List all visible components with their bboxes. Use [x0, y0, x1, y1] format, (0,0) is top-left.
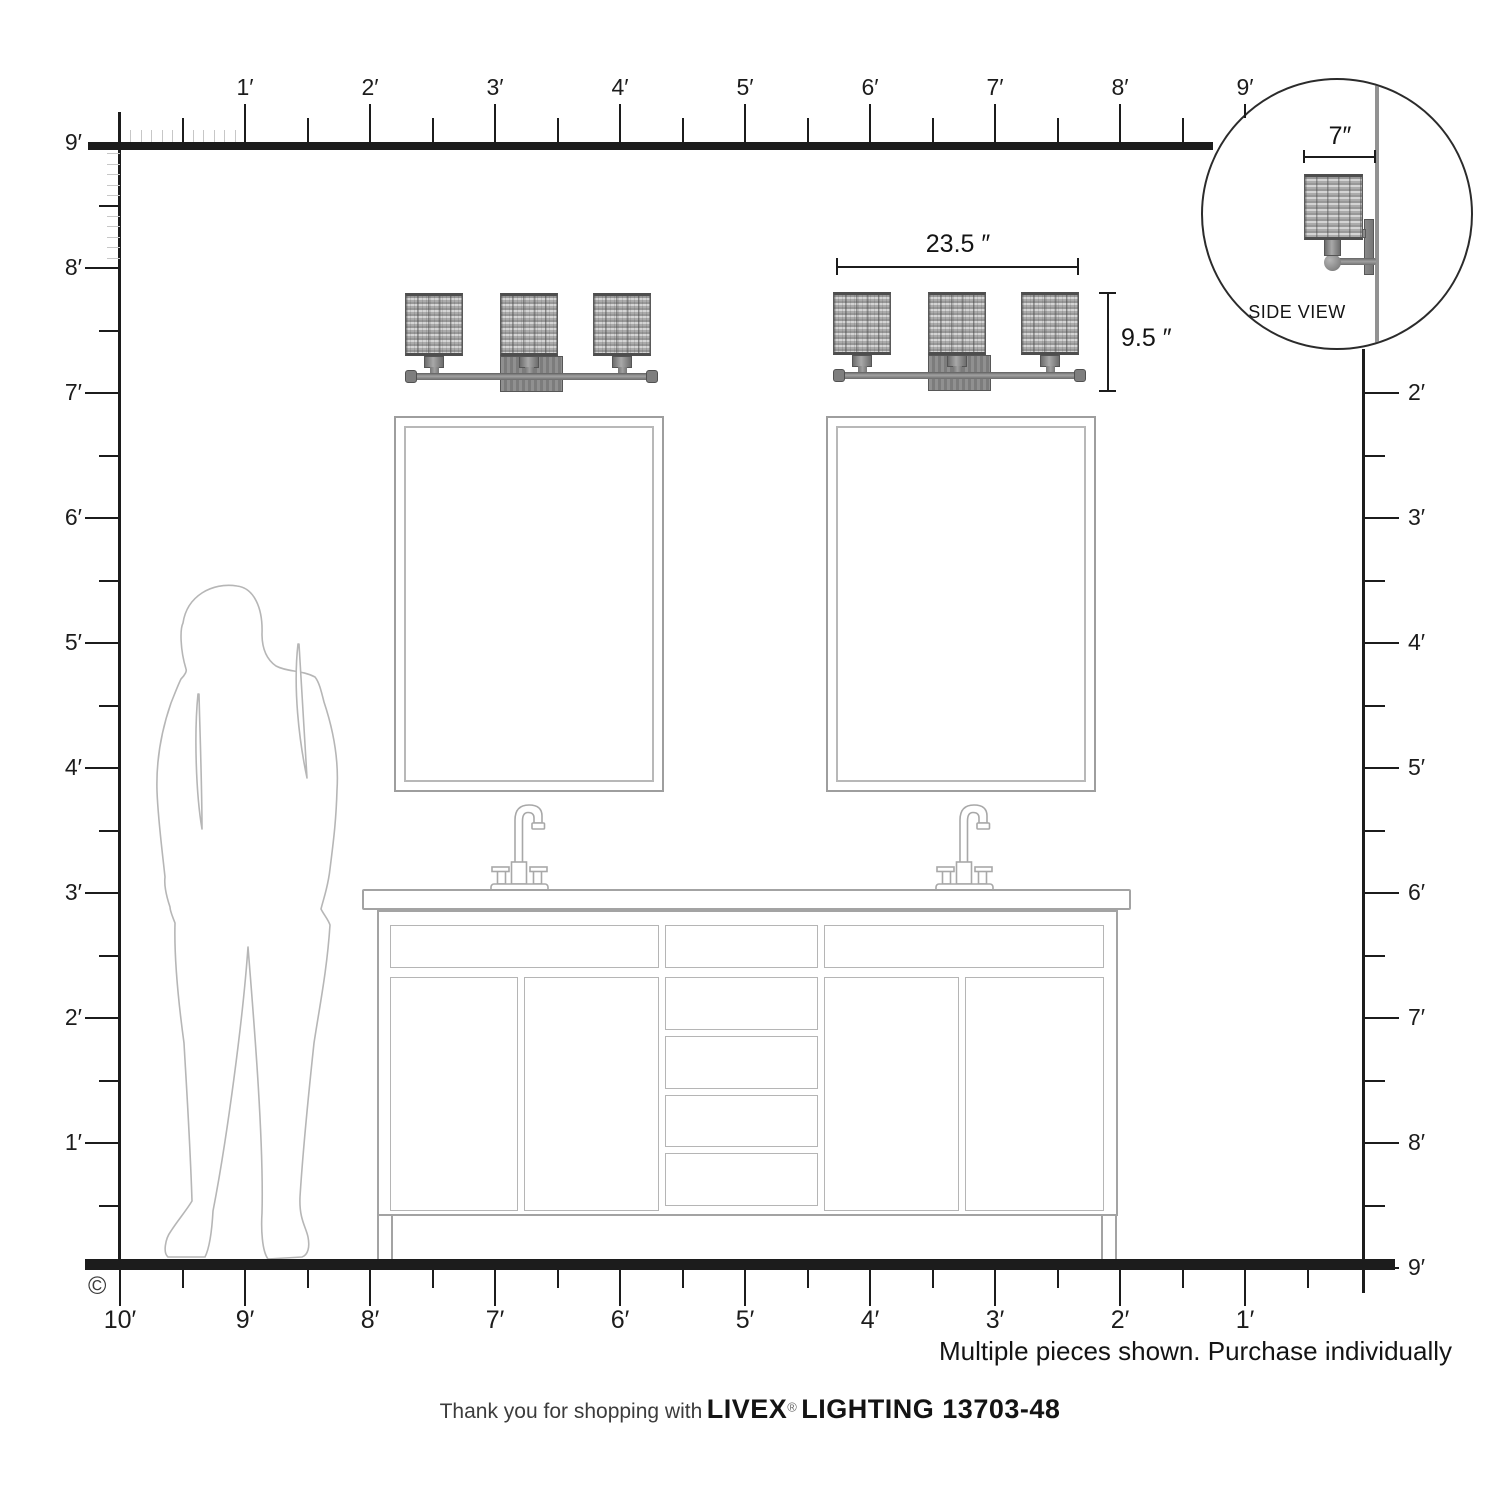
top-ruler-label: 5′	[715, 76, 775, 99]
bottom-ruler-half-tick	[432, 1270, 434, 1288]
bottom-ruler-foot-tick	[244, 1270, 246, 1306]
left-ruler-half-tick	[99, 705, 120, 707]
width-dimension-line	[837, 266, 1079, 268]
left-ruler-label: 4′	[34, 756, 82, 779]
vanity-countertop	[362, 889, 1131, 910]
right-wall-line	[1362, 349, 1365, 1293]
mirror-right	[826, 416, 1096, 792]
right-ruler-label: 5′	[1408, 756, 1425, 779]
bottom-ruler-foot-tick	[744, 1270, 746, 1306]
left-ruler-half-tick	[99, 580, 120, 582]
footer-thanks-text: Thank you for shopping with	[440, 1400, 703, 1423]
top-ruler-line	[88, 142, 1213, 150]
bottom-ruler-label: 1′	[1210, 1308, 1280, 1333]
left-ruler-inch-tick	[107, 226, 120, 227]
mirror-right-glass	[836, 426, 1086, 782]
side-view-label: SIDE VIEW	[1217, 302, 1377, 323]
top-ruler-half-tick	[1057, 118, 1059, 142]
vanity-top-drawer-right	[824, 925, 1104, 968]
bottom-ruler-foot-tick	[119, 1270, 121, 1306]
footer-brand: LIVEX	[707, 1394, 788, 1424]
left-ruler-label: 5′	[34, 631, 82, 654]
top-ruler-foot-tick	[619, 104, 621, 142]
scale-diagram: 1′2′3′4′5′6′7′8′9′ 9′8′7′6′5′4′3′2′1′ 2′…	[0, 0, 1500, 1500]
left-ruler-half-tick	[99, 455, 120, 457]
top-ruler-foot-tick	[1119, 104, 1121, 142]
top-ruler-label: 4′	[590, 76, 650, 99]
left-ruler-half-tick	[99, 1205, 120, 1207]
bottom-ruler-half-tick	[1057, 1270, 1059, 1288]
top-ruler-foot-tick	[994, 104, 996, 142]
top-ruler-foot-tick	[1244, 104, 1246, 118]
left-ruler-inch-tick	[107, 164, 120, 165]
depth-dimension-line	[1304, 156, 1376, 158]
right-ruler-half-tick	[1364, 1205, 1385, 1207]
bottom-ruler-half-tick	[932, 1270, 934, 1288]
right-ruler-label: 9′	[1408, 1256, 1425, 1279]
vanity-leg-right	[1101, 1216, 1117, 1261]
right-ruler-half-tick	[1364, 830, 1385, 832]
bottom-ruler-half-tick	[182, 1270, 184, 1288]
left-ruler-foot-tick	[85, 392, 120, 394]
top-ruler-inch-tick	[235, 130, 236, 142]
left-ruler-label: 9′	[34, 131, 82, 154]
top-ruler-foot-tick	[869, 104, 871, 142]
top-ruler-foot-tick	[369, 104, 371, 142]
top-ruler-inch-tick	[203, 130, 204, 142]
bottom-ruler-foot-tick	[994, 1270, 996, 1306]
right-ruler-half-tick	[1364, 580, 1385, 582]
bottom-ruler-foot-tick	[369, 1270, 371, 1306]
left-ruler-foot-tick	[85, 517, 120, 519]
bottom-ruler-label: 9′	[210, 1308, 280, 1333]
bottom-ruler-half-tick	[1307, 1270, 1309, 1288]
top-ruler-half-tick	[307, 118, 309, 142]
bottom-ruler-half-tick	[807, 1270, 809, 1288]
right-ruler-half-tick	[1364, 1080, 1385, 1082]
left-ruler-label: 1′	[34, 1131, 82, 1154]
right-ruler-label: 2′	[1408, 381, 1425, 404]
right-ruler-label: 4′	[1408, 631, 1425, 654]
left-ruler-inch-tick	[107, 247, 120, 248]
vanity-light-left	[405, 293, 658, 393]
sconce-shade-side	[1304, 174, 1363, 240]
faucet-left	[461, 798, 581, 893]
bottom-ruler-foot-tick	[619, 1270, 621, 1306]
copyright-symbol: ©	[88, 1272, 106, 1301]
top-ruler-half-tick	[557, 118, 559, 142]
bottom-ruler-foot-tick	[1244, 1270, 1246, 1306]
left-ruler-label: 3′	[34, 881, 82, 904]
right-ruler-foot-tick	[1364, 642, 1399, 644]
top-ruler-inch-tick	[224, 130, 225, 142]
bottom-ruler-label: 7′	[460, 1308, 530, 1333]
person-silhouette	[140, 578, 360, 1268]
sconce-ball-joint	[1324, 254, 1341, 271]
left-ruler-label: 2′	[34, 1006, 82, 1029]
sconce-stem	[1324, 238, 1341, 256]
purchase-note: Multiple pieces shown. Purchase individu…	[939, 1336, 1452, 1367]
vanity-drawer	[665, 1036, 818, 1089]
side-view-circle: 7″ SIDE VIEW	[1201, 78, 1473, 350]
faucet-right	[906, 798, 1026, 893]
vanity-drawer	[665, 1095, 818, 1147]
right-ruler-foot-tick	[1364, 1017, 1399, 1019]
fixture-bar	[839, 372, 1080, 379]
bottom-ruler-half-tick	[307, 1270, 309, 1288]
left-ruler-half-tick	[99, 205, 120, 207]
bottom-ruler-foot-tick	[494, 1270, 496, 1306]
bottom-ruler-half-tick	[1182, 1270, 1184, 1288]
bottom-ruler-label: 10′	[85, 1308, 155, 1333]
fixture-shade	[1021, 292, 1079, 355]
top-ruler-foot-tick	[744, 104, 746, 142]
bottom-ruler-label: 6′	[585, 1308, 655, 1333]
top-ruler-label: 1′	[215, 76, 275, 99]
top-ruler-label: 6′	[840, 76, 900, 99]
height-dimension-label: 9.5 ″	[1121, 326, 1172, 351]
vanity-door	[390, 977, 518, 1211]
left-ruler-half-tick	[99, 955, 120, 957]
bottom-ruler-half-tick	[557, 1270, 559, 1288]
top-ruler-foot-tick	[494, 104, 496, 142]
vanity-top-drawer-left	[390, 925, 659, 968]
left-ruler-foot-tick	[85, 267, 120, 269]
left-ruler-half-tick	[99, 1080, 120, 1082]
footer-line: Thank you for shopping with LIVEX® LIGHT…	[0, 1394, 1500, 1425]
top-ruler-label: 7′	[965, 76, 1025, 99]
left-ruler-foot-tick	[85, 1017, 120, 1019]
mirror-left	[394, 416, 664, 792]
top-ruler-label: 2′	[340, 76, 400, 99]
right-ruler-half-tick	[1364, 705, 1385, 707]
left-ruler-inch-tick	[107, 185, 120, 186]
top-ruler-label: 8′	[1090, 76, 1150, 99]
bottom-ruler-half-tick	[682, 1270, 684, 1288]
left-ruler-inch-tick	[107, 237, 120, 238]
right-ruler-half-tick	[1364, 455, 1385, 457]
sconce-backplate	[1364, 219, 1374, 275]
vanity-door	[524, 977, 659, 1211]
left-ruler-inch-tick	[107, 216, 120, 217]
bottom-ruler-label: 8′	[335, 1308, 405, 1333]
left-ruler-foot-tick	[85, 767, 120, 769]
vanity-drawer	[665, 977, 818, 1030]
right-ruler-foot-tick	[1364, 392, 1399, 394]
left-ruler-label: 6′	[34, 506, 82, 529]
top-ruler-label: 3′	[465, 76, 525, 99]
top-ruler-foot-tick	[244, 104, 246, 142]
bottom-ruler-label: 3′	[960, 1308, 1030, 1333]
depth-dimension-label: 7″	[1300, 124, 1380, 149]
bottom-ruler-foot-tick	[869, 1270, 871, 1306]
top-ruler-inch-tick	[151, 130, 152, 142]
left-ruler-foot-tick	[85, 1142, 120, 1144]
right-ruler-label: 3′	[1408, 506, 1425, 529]
left-ruler-inch-tick	[107, 258, 120, 259]
fixture-shade	[405, 293, 463, 356]
vanity-door	[965, 977, 1104, 1211]
top-ruler-label: 9′	[1215, 76, 1275, 99]
mirror-left-glass	[404, 426, 654, 782]
top-ruler-half-tick	[682, 118, 684, 142]
bottom-ruler-label: 5′	[710, 1308, 780, 1333]
right-ruler-label: 7′	[1408, 1006, 1425, 1029]
right-ruler-foot-tick	[1364, 767, 1399, 769]
bottom-ruler-label: 2′	[1085, 1308, 1155, 1333]
left-ruler-inch-tick	[107, 174, 120, 175]
width-dimension-label: 23.5 ″	[898, 232, 1018, 257]
top-ruler-inch-tick	[141, 130, 142, 142]
vanity-drawer	[665, 1153, 818, 1206]
top-ruler-half-tick	[932, 118, 934, 142]
left-ruler-half-tick	[99, 830, 120, 832]
bottom-ruler-label: 4′	[835, 1308, 905, 1333]
top-ruler-half-tick	[182, 118, 184, 142]
right-ruler-label: 8′	[1408, 1131, 1425, 1154]
fixture-shade	[833, 292, 891, 355]
left-ruler-foot-tick	[85, 642, 120, 644]
left-ruler-label: 8′	[34, 256, 82, 279]
vanity-leg-left	[377, 1216, 393, 1261]
fixture-shade	[593, 293, 651, 356]
left-ruler-foot-tick	[85, 892, 120, 894]
vanity-light-right	[833, 292, 1086, 392]
left-ruler-inch-tick	[107, 153, 120, 154]
right-ruler-foot-tick	[1364, 1142, 1399, 1144]
left-wall-line	[118, 112, 121, 1265]
top-ruler-inch-tick	[130, 130, 131, 142]
top-ruler-half-tick	[432, 118, 434, 142]
top-ruler-inch-tick	[162, 130, 163, 142]
top-ruler-half-tick	[807, 118, 809, 142]
registered-mark: ®	[787, 1400, 797, 1415]
fixture-bar	[411, 373, 652, 380]
height-dimension-line	[1107, 293, 1109, 392]
top-ruler-inch-tick	[193, 130, 194, 142]
top-ruler-half-tick	[1182, 118, 1184, 142]
left-ruler-half-tick	[99, 330, 120, 332]
top-ruler-inch-tick	[214, 130, 215, 142]
right-ruler-foot-tick	[1364, 892, 1399, 894]
left-ruler-inch-tick	[107, 195, 120, 196]
footer-product-number: LIGHTING 13703-48	[801, 1394, 1060, 1424]
fixture-shade	[928, 292, 986, 355]
fixture-shade	[500, 293, 558, 356]
right-ruler-label: 6′	[1408, 881, 1425, 904]
floor-line	[85, 1259, 1395, 1270]
vanity-top-drawer-center	[665, 925, 818, 968]
vanity-door	[824, 977, 959, 1211]
bottom-ruler-foot-tick	[1119, 1270, 1121, 1306]
right-ruler-half-tick	[1364, 955, 1385, 957]
right-ruler-foot-tick	[1364, 517, 1399, 519]
left-ruler-label: 7′	[34, 381, 82, 404]
top-ruler-inch-tick	[172, 130, 173, 142]
